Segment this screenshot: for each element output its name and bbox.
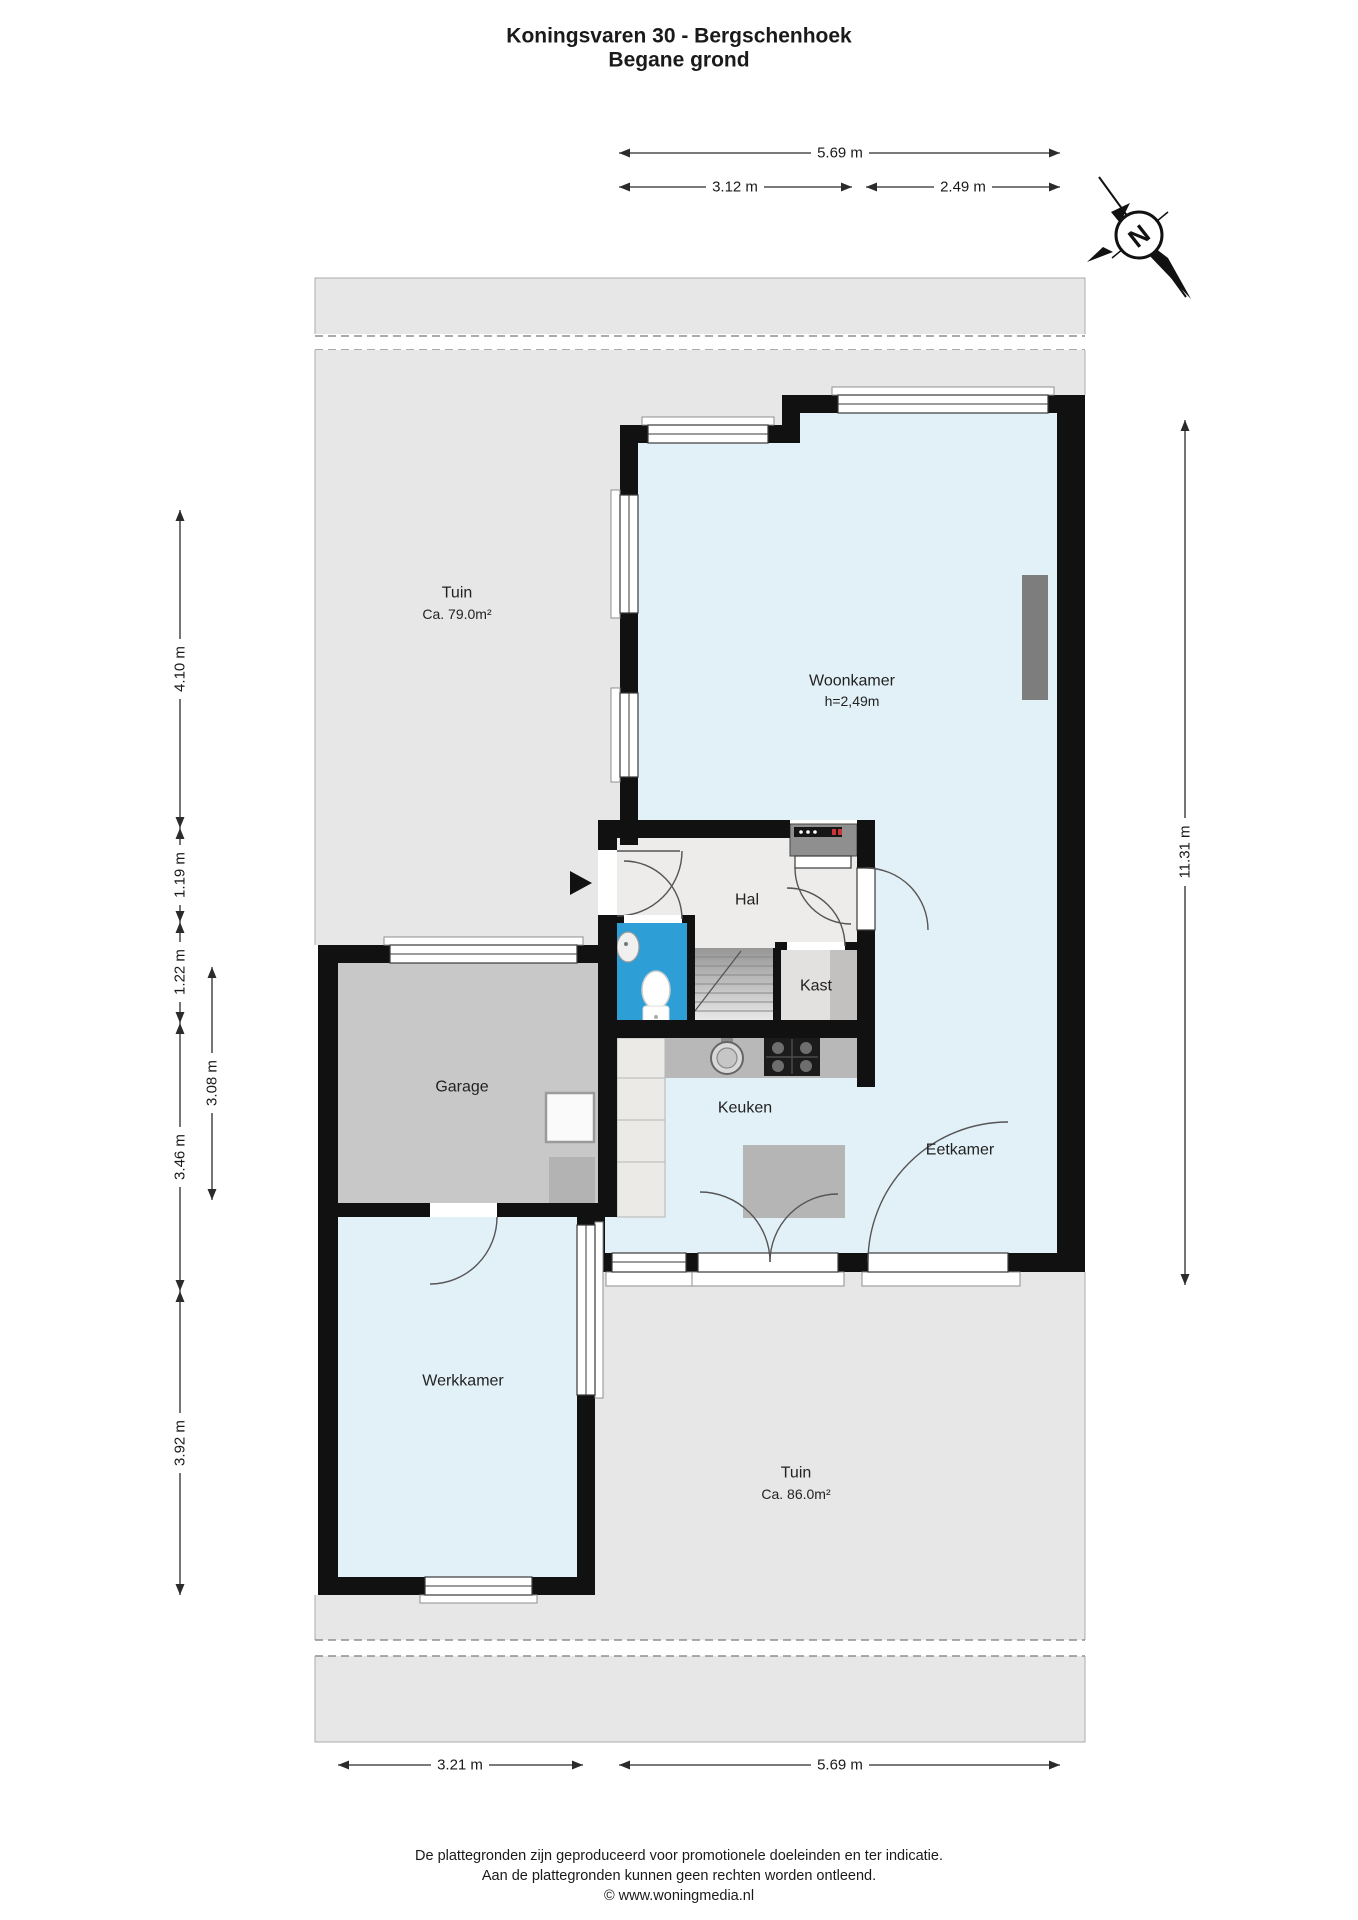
svg-text:3.08 m: 3.08 m bbox=[204, 1060, 221, 1106]
label-werkkamer: Werkkamer bbox=[422, 1373, 504, 1390]
svg-text:1.19 m: 1.19 m bbox=[172, 852, 189, 898]
kitchen-cabinets bbox=[617, 1038, 665, 1217]
dim-top-right: 2.49 m bbox=[866, 178, 1060, 196]
label-eetkamer: Eetkamer bbox=[926, 1142, 995, 1159]
svg-text:4.10 m: 4.10 m bbox=[172, 646, 189, 692]
dim-left-1-19: 1.19 m bbox=[171, 828, 189, 922]
svg-text:5.69 m: 5.69 m bbox=[817, 145, 863, 162]
wall-hal-right-b bbox=[857, 930, 875, 1087]
wall-hal-right-a bbox=[857, 820, 875, 868]
page-title: Koningsvaren 30 - Bergschenhoek bbox=[506, 25, 852, 48]
label-tuin-onder-area: Ca. 86.0m² bbox=[761, 1486, 831, 1502]
label-tuin-boven-area: Ca. 79.0m² bbox=[422, 606, 492, 622]
garage-worktop bbox=[549, 1157, 595, 1203]
tv-cabinet bbox=[1022, 575, 1048, 700]
cooktop bbox=[764, 1037, 820, 1076]
window-top-right bbox=[832, 387, 1054, 413]
dim-left-inner-3-08: 3.08 m bbox=[203, 967, 221, 1200]
svg-text:11.31 m: 11.31 m bbox=[1177, 825, 1194, 878]
meter-red-light bbox=[832, 829, 836, 835]
wall-west-upper bbox=[620, 425, 638, 845]
kast-shelf bbox=[830, 950, 857, 1020]
window-garage bbox=[384, 937, 583, 963]
wall-toilet-right bbox=[687, 915, 695, 1020]
footer-line-3: © www.woningmedia.nl bbox=[604, 1888, 754, 1904]
svg-text:2.49 m: 2.49 m bbox=[940, 179, 986, 196]
dim-bottom-left: 3.21 m bbox=[338, 1756, 583, 1774]
wall-kast-left bbox=[773, 948, 781, 1020]
compass-icon: N bbox=[1087, 177, 1191, 299]
window-werkkamer-right bbox=[577, 1222, 603, 1398]
label-tuin-onder: Tuin bbox=[781, 1465, 812, 1482]
floor-werkkamer bbox=[338, 1217, 577, 1577]
dim-bottom-right: 5.69 m bbox=[619, 1756, 1060, 1774]
window-werkkamer-bottom bbox=[420, 1577, 537, 1603]
dim-left-3-46: 3.46 m bbox=[171, 1023, 189, 1291]
dim-left-1-22: 1.22 m bbox=[171, 922, 189, 1023]
garden-strip-bottom bbox=[315, 1656, 1085, 1742]
garden-strip-top bbox=[315, 278, 1085, 334]
wall-east bbox=[1057, 395, 1085, 1272]
window-eetkamer-south bbox=[606, 1253, 692, 1286]
dim-right-total: 11.31 m bbox=[1176, 420, 1194, 1285]
floorplan-drawing: Koningsvaren 30 - Bergschenhoek Begane g… bbox=[0, 0, 1358, 1920]
dim-left-4-10: 4.10 m bbox=[171, 510, 189, 828]
label-hal: Hal bbox=[735, 892, 759, 909]
dim-top-left: 3.12 m bbox=[619, 178, 852, 196]
label-woonkamer: Woonkamer bbox=[809, 673, 896, 690]
svg-text:3.46 m: 3.46 m bbox=[172, 1134, 189, 1180]
wall-keuken-top bbox=[617, 1020, 875, 1038]
meter-cupboard bbox=[790, 824, 857, 856]
window-west-2 bbox=[611, 688, 638, 782]
garage-boiler bbox=[546, 1093, 594, 1142]
window-top-left bbox=[642, 417, 774, 443]
label-garage: Garage bbox=[435, 1079, 488, 1096]
kitchen-island bbox=[743, 1145, 845, 1218]
svg-text:3.12 m: 3.12 m bbox=[712, 179, 758, 196]
wall-west-outer bbox=[318, 945, 338, 1595]
footer-line-1: De plattegronden zijn geproduceerd voor … bbox=[415, 1848, 943, 1864]
toilet-sink bbox=[617, 932, 639, 962]
svg-text:3.92 m: 3.92 m bbox=[172, 1420, 189, 1466]
label-woonkamer-height: h=2,49m bbox=[825, 693, 880, 709]
dim-left-3-92: 3.92 m bbox=[171, 1291, 189, 1595]
wall-hal-top bbox=[617, 820, 790, 838]
floorplan-page: Koningsvaren 30 - Bergschenhoek Begane g… bbox=[0, 0, 1358, 1920]
footer: De plattegronden zijn geproduceerd voor … bbox=[415, 1848, 943, 1904]
dim-top-total: 5.69 m bbox=[619, 144, 1060, 162]
label-tuin-boven: Tuin bbox=[442, 585, 473, 602]
page-subtitle: Begane grond bbox=[608, 49, 749, 72]
meter-red-light bbox=[838, 829, 842, 835]
label-keuken: Keuken bbox=[718, 1100, 772, 1117]
kitchen-counter bbox=[665, 1038, 857, 1078]
label-kast: Kast bbox=[800, 978, 833, 995]
svg-text:5.69 m: 5.69 m bbox=[817, 1757, 863, 1774]
toilet-fixture bbox=[642, 971, 670, 1028]
svg-text:1.22 m: 1.22 m bbox=[172, 949, 189, 995]
svg-text:3.21 m: 3.21 m bbox=[437, 1757, 483, 1774]
window-west-1 bbox=[611, 490, 638, 618]
footer-line-2: Aan de plattegronden kunnen geen rechten… bbox=[482, 1868, 876, 1884]
